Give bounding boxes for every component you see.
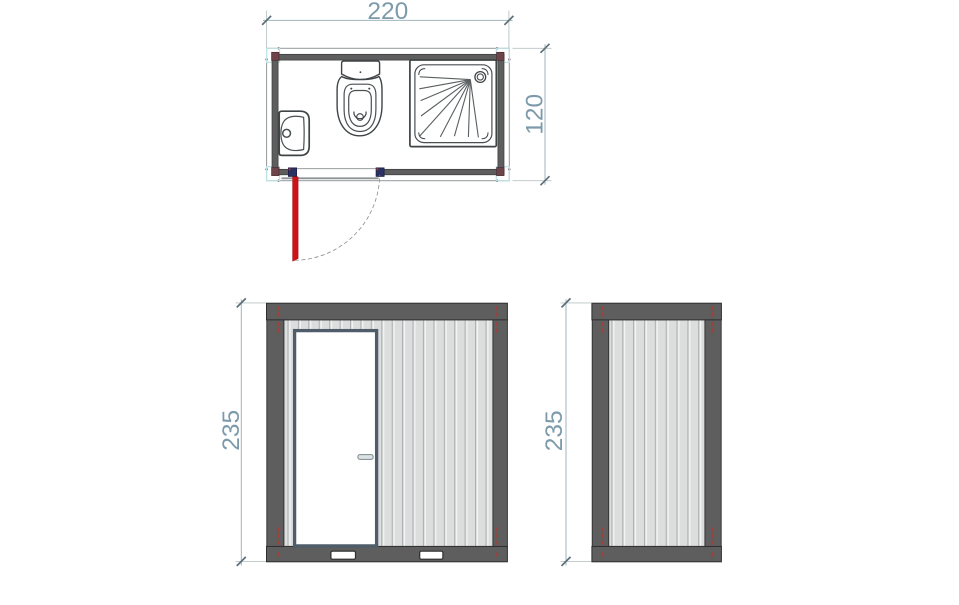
svg-text:120: 120 (522, 94, 549, 135)
svg-text:235: 235 (541, 410, 568, 451)
svg-text:235: 235 (218, 410, 245, 451)
svg-text:220: 220 (367, 0, 408, 25)
